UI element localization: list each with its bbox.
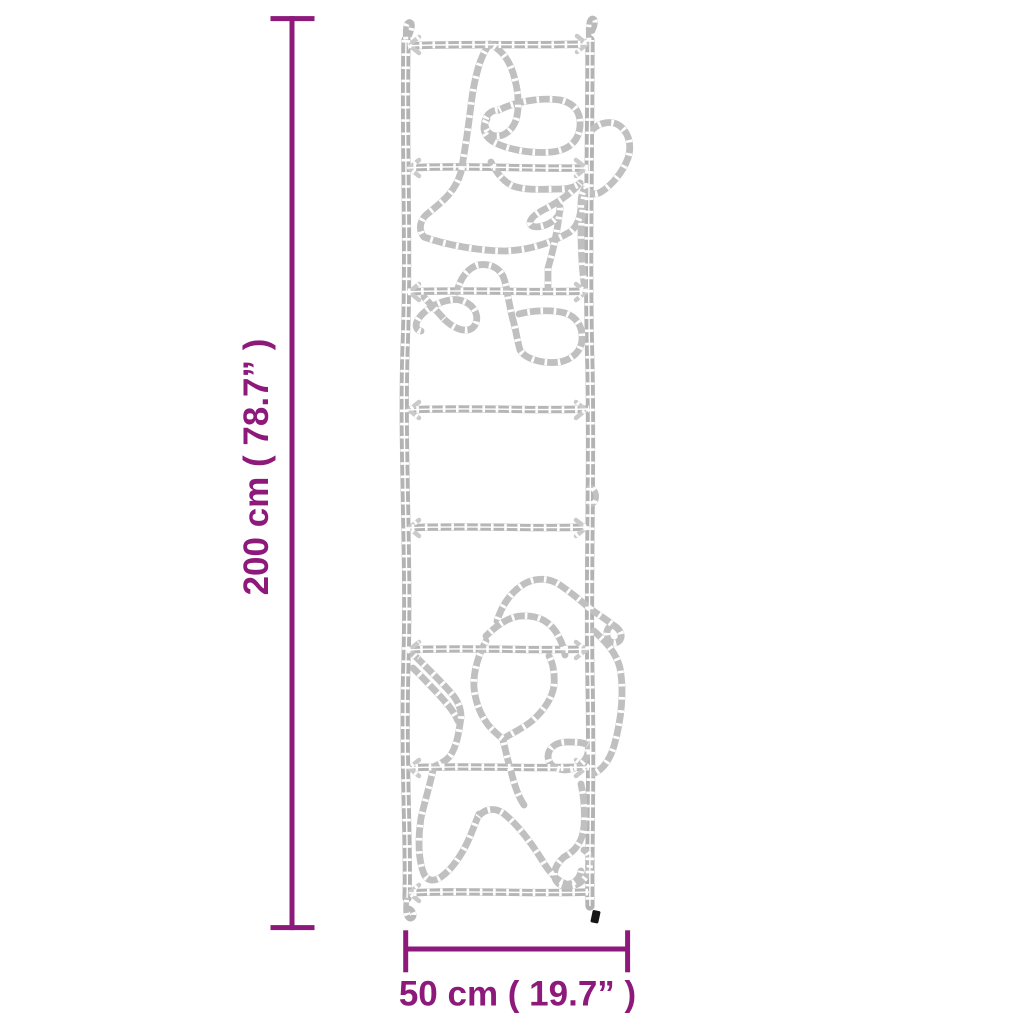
svg-text:200 cm ( 78.7” ): 200 cm ( 78.7” ) [237, 339, 276, 596]
svg-text:50 cm ( 19.7” ): 50 cm ( 19.7” ) [399, 975, 636, 1014]
